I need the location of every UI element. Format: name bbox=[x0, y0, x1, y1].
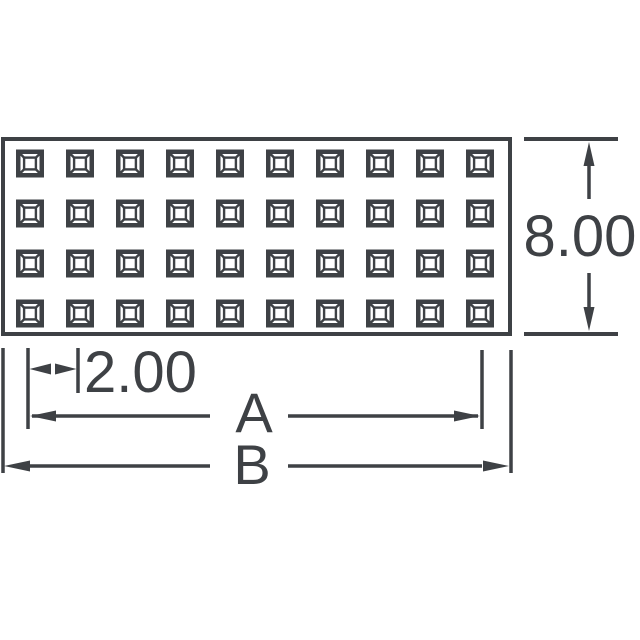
contact-pad bbox=[218, 202, 242, 226]
contact-pad bbox=[468, 152, 492, 176]
contact-pad bbox=[468, 202, 492, 226]
contact-pad bbox=[168, 252, 192, 276]
arrow-down-icon bbox=[584, 307, 595, 331]
arrow-right-icon bbox=[454, 411, 480, 422]
contact-pad bbox=[118, 302, 142, 326]
contact-pad bbox=[418, 202, 442, 226]
contact-pad bbox=[318, 252, 342, 276]
contact-pad bbox=[168, 302, 192, 326]
contact-pad bbox=[268, 152, 292, 176]
contact-pad bbox=[68, 252, 92, 276]
contact-pad bbox=[68, 152, 92, 176]
contact-pad bbox=[168, 152, 192, 176]
contact-pad bbox=[118, 252, 142, 276]
arrow-up-icon bbox=[584, 142, 595, 166]
contact-pad bbox=[418, 252, 442, 276]
contact-pad bbox=[318, 202, 342, 226]
dim-height-label: 8.00 bbox=[524, 204, 637, 269]
contact-pad bbox=[368, 202, 392, 226]
contact-pad bbox=[18, 152, 42, 176]
arrow-right-icon bbox=[483, 461, 509, 472]
dim-height: 8.00 bbox=[524, 139, 637, 334]
contact-pad bbox=[118, 152, 142, 176]
contact-pad bbox=[18, 302, 42, 326]
contact-pad bbox=[418, 302, 442, 326]
arrow-left-icon bbox=[30, 364, 52, 375]
contact-grid bbox=[18, 152, 492, 326]
contact-pad bbox=[368, 152, 392, 176]
contact-pad bbox=[318, 152, 342, 176]
contact-pad bbox=[268, 252, 292, 276]
dim-b-label: B bbox=[233, 433, 270, 496]
connector-body bbox=[3, 139, 510, 334]
contact-pad bbox=[168, 202, 192, 226]
connector-drawing: 8.00 2.00 A B bbox=[0, 0, 640, 640]
contact-pad bbox=[368, 302, 392, 326]
contact-pad bbox=[418, 152, 442, 176]
contact-pad bbox=[218, 302, 242, 326]
contact-pad bbox=[118, 202, 142, 226]
contact-pad bbox=[218, 152, 242, 176]
contact-pad bbox=[18, 252, 42, 276]
contact-pad bbox=[468, 252, 492, 276]
contact-pad bbox=[218, 252, 242, 276]
technical-drawing-canvas: 8.00 2.00 A B bbox=[0, 0, 640, 640]
contact-pad bbox=[268, 202, 292, 226]
contact-pad bbox=[268, 302, 292, 326]
contact-pad bbox=[68, 202, 92, 226]
contact-pad bbox=[368, 252, 392, 276]
contact-pad bbox=[468, 302, 492, 326]
contact-pad bbox=[18, 202, 42, 226]
contact-pad bbox=[318, 302, 342, 326]
arrow-left-icon bbox=[4, 461, 30, 472]
arrow-right-icon bbox=[55, 364, 77, 375]
dim-pitch-label: 2.00 bbox=[84, 340, 197, 405]
contact-pad bbox=[68, 302, 92, 326]
